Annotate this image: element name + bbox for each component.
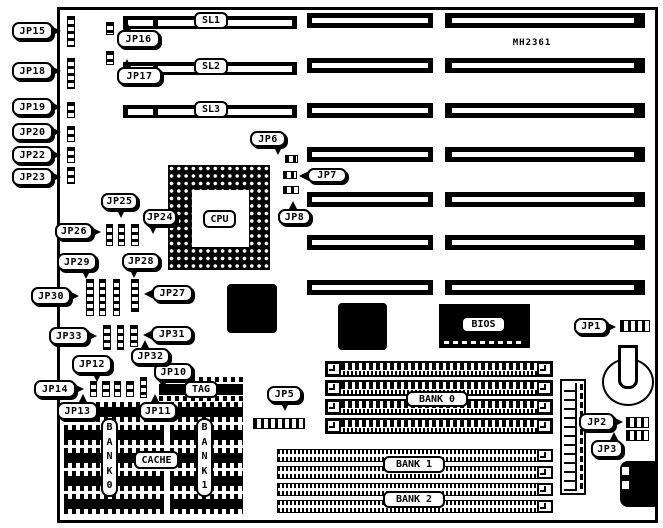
vertical-label-char: A xyxy=(106,436,112,451)
simm-latch-right xyxy=(537,483,553,496)
callout-jp7: JP7 xyxy=(307,168,347,183)
callout-jp12: JP12 xyxy=(72,355,112,374)
callout-jp32: JP32 xyxy=(131,348,170,365)
callout-jp10-text: JP10 xyxy=(160,367,186,378)
callout-jp19-text: JP19 xyxy=(19,102,45,113)
tag-label-text: TAG xyxy=(192,384,210,395)
callout-jp16-text: JP16 xyxy=(125,34,151,45)
callout-jp5-text: JP5 xyxy=(275,389,295,400)
slot-sl1-label: SL1 xyxy=(194,12,228,29)
callout-jp14-text: JP14 xyxy=(42,384,68,395)
callout-jp33-pointer xyxy=(87,331,97,341)
callout-jp11-text: JP11 xyxy=(145,406,171,417)
callout-jp15: JP15 xyxy=(12,22,53,40)
callout-jp11: JP11 xyxy=(139,402,177,420)
callout-jp26-pointer xyxy=(91,227,101,237)
callout-jp15-text: JP15 xyxy=(19,26,45,37)
callout-jp13-pointer xyxy=(78,394,88,404)
simm-latch-right xyxy=(537,362,552,376)
callout-jp20-pointer xyxy=(51,127,61,137)
bank2-label-text: BANK 2 xyxy=(396,494,432,505)
jp5-jumper xyxy=(253,418,305,429)
simm-latch-right xyxy=(537,419,552,433)
callout-jp17-text: JP17 xyxy=(126,71,152,82)
isa-slot-right-2 xyxy=(445,58,645,73)
jp33-jumper xyxy=(103,325,111,350)
cache-label: CACHE xyxy=(134,451,179,469)
callout-jp29-pointer xyxy=(81,269,91,279)
callout-jp27-pointer xyxy=(144,289,154,299)
jp16-jumper xyxy=(106,22,114,35)
callout-jp33: JP33 xyxy=(49,327,89,345)
bank1-label: BANK 1 xyxy=(383,456,445,473)
jp25-jumper xyxy=(118,224,125,246)
bank1-label-text: BANK 1 xyxy=(396,459,432,470)
callout-jp13: JP13 xyxy=(57,402,98,420)
jp15-jumper xyxy=(67,16,75,47)
callout-jp20-text: JP20 xyxy=(19,127,45,138)
callout-jp25-pointer xyxy=(116,208,126,218)
jp18-jumper xyxy=(67,58,75,89)
jp1-jumper xyxy=(620,320,650,332)
jp29-jumper-b xyxy=(113,279,120,316)
callout-jp8: JP8 xyxy=(278,209,311,225)
callout-jp29: JP29 xyxy=(57,253,97,271)
cpu-label-text: CPU xyxy=(210,214,228,225)
callout-jp26-text: JP26 xyxy=(61,226,87,237)
callout-jp28-pointer xyxy=(129,268,139,278)
tag-label: TAG xyxy=(184,381,218,398)
callout-jp24-text: JP24 xyxy=(147,212,173,223)
isa-slot-mid-1 xyxy=(307,13,433,28)
callout-jp28: JP28 xyxy=(122,253,160,270)
callout-jp22: JP22 xyxy=(12,146,53,164)
slot-sl2-label: SL2 xyxy=(194,58,228,75)
callout-jp18-text: JP18 xyxy=(19,66,45,77)
bios-label: BIOS xyxy=(461,316,506,333)
power-connector-pins xyxy=(564,383,577,491)
callout-jp11-pointer xyxy=(150,394,160,404)
callout-jp22-pointer xyxy=(51,150,61,160)
callout-jp25: JP25 xyxy=(101,193,138,210)
motherboard-diagram: MH2361 CPU BIOS TAG CACHE BANK0 BANK1 BA… xyxy=(0,0,663,528)
callout-jp16: JP16 xyxy=(117,30,160,48)
isa-slot-mid-6 xyxy=(307,235,433,250)
jp20-jumper xyxy=(67,126,75,142)
keyboard-connector-notch-1 xyxy=(622,467,629,475)
callout-jp30-pointer xyxy=(69,291,79,301)
isa-slot-mid-4 xyxy=(307,147,433,162)
bank0-simm-socket-1 xyxy=(325,361,553,377)
callout-jp18-pointer xyxy=(51,66,61,76)
jp27-jumper xyxy=(131,279,139,312)
jp7-jumper xyxy=(283,171,297,179)
callout-jp32-pointer xyxy=(140,340,150,350)
callout-jp30: JP30 xyxy=(31,287,71,305)
isa-slot-mid-2 xyxy=(307,58,433,73)
bios-label-text: BIOS xyxy=(471,319,495,330)
callout-jp8-text: JP8 xyxy=(285,212,305,223)
vertical-label-char: A xyxy=(201,436,207,451)
vertical-label-char: K xyxy=(106,465,112,480)
callout-jp28-text: JP28 xyxy=(128,256,154,267)
callout-jp19: JP19 xyxy=(12,98,53,116)
callout-jp22-text: JP22 xyxy=(19,150,45,161)
callout-jp29-text: JP29 xyxy=(64,257,90,268)
bank0-simm-socket-4 xyxy=(325,418,553,434)
isa-slot-right-4 xyxy=(445,147,645,162)
jp2-jumper xyxy=(626,417,649,428)
jp26-jumper xyxy=(106,224,113,246)
callout-jp10-pointer xyxy=(158,379,168,389)
callout-jp25-text: JP25 xyxy=(106,196,132,207)
callout-jp17: JP17 xyxy=(117,67,162,85)
callout-jp7-pointer xyxy=(299,171,309,181)
isa-slot-right-3 xyxy=(445,103,645,118)
bank0-label: BANK 0 xyxy=(406,391,468,407)
callout-jp14-pointer xyxy=(74,384,84,394)
callout-jp12-pointer xyxy=(92,372,102,382)
vertical-label-char: 1 xyxy=(201,479,207,494)
battery-clip xyxy=(618,345,638,389)
callout-jp23-pointer xyxy=(51,172,61,182)
power-connector xyxy=(560,379,586,495)
callout-jp26: JP26 xyxy=(55,223,93,240)
sl1-text: SL1 xyxy=(202,15,220,26)
jp24-jumper xyxy=(131,224,139,246)
callout-jp19-pointer xyxy=(51,102,61,112)
callout-jp2-text: JP2 xyxy=(587,417,607,428)
cache-bank0-vertical-label: BANK0 xyxy=(101,418,118,497)
callout-jp33-text: JP33 xyxy=(56,331,82,342)
callout-jp32-text: JP32 xyxy=(137,351,163,362)
callout-jp6-text: JP6 xyxy=(258,134,278,145)
bank2-label: BANK 2 xyxy=(383,491,445,508)
jp29-jumper-a xyxy=(99,279,106,316)
callout-jp6: JP6 xyxy=(250,131,286,147)
callout-jp3-pointer xyxy=(609,432,619,442)
callout-jp1: JP1 xyxy=(574,318,608,335)
vertical-label-char: B xyxy=(106,421,112,436)
sl3-text: SL3 xyxy=(202,104,220,115)
keyboard-connector-notch-2 xyxy=(622,481,629,489)
simm-latch-left xyxy=(326,381,341,395)
cache-chip-right-5 xyxy=(170,494,243,514)
callout-jp20: JP20 xyxy=(12,123,53,141)
vertical-label-char: 0 xyxy=(106,479,112,494)
jp12-jumper xyxy=(102,381,110,397)
jp19-jumper xyxy=(67,102,75,118)
isa-slot-mid-7 xyxy=(307,280,433,295)
simm-latch-left xyxy=(326,400,341,414)
qfp-chip-1 xyxy=(227,284,277,333)
callout-jp8-pointer xyxy=(288,201,298,211)
cache-label-text: CACHE xyxy=(141,455,171,466)
callout-jp3-text: JP3 xyxy=(597,444,617,455)
isa-slot-right-6 xyxy=(445,235,645,250)
simm-latch-right xyxy=(537,466,553,479)
cpu-label: CPU xyxy=(203,210,236,228)
jp14-jumper xyxy=(90,381,97,397)
jp6-jumper xyxy=(285,155,298,163)
jp8-jumper xyxy=(283,186,299,194)
callout-jp31-pointer xyxy=(143,330,153,340)
simm-latch-left xyxy=(326,419,341,433)
callout-jp27-text: JP27 xyxy=(159,288,185,299)
callout-jp5-pointer xyxy=(280,401,290,411)
simm-latch-right xyxy=(537,449,553,462)
power-connector-contacts xyxy=(580,384,583,490)
cache-bank1-vertical-label: BANK1 xyxy=(196,418,213,497)
isa-slot-right-1 xyxy=(445,13,645,28)
callout-jp1-text: JP1 xyxy=(581,321,601,332)
callout-jp1-pointer xyxy=(606,322,616,332)
callout-jp2: JP2 xyxy=(579,413,615,431)
jp31-jumper xyxy=(130,325,138,347)
jp32-jumper xyxy=(117,325,124,350)
vertical-label-char: N xyxy=(106,450,112,465)
board-model-text: MH2361 xyxy=(506,38,558,50)
callout-jp30-text: JP30 xyxy=(38,291,64,302)
callout-jp31: JP31 xyxy=(151,326,193,343)
callout-jp15-pointer xyxy=(51,26,61,36)
simm-latch-right xyxy=(537,400,552,414)
callout-jp12-text: JP12 xyxy=(79,359,105,370)
callout-jp7-text: JP7 xyxy=(317,170,337,181)
jp3-jumper xyxy=(626,430,649,441)
qfp-chip-2 xyxy=(338,303,387,350)
callout-jp5: JP5 xyxy=(267,386,302,403)
callout-jp17-pointer xyxy=(122,59,132,69)
callout-jp3: JP3 xyxy=(591,440,623,458)
callout-jp2-pointer xyxy=(613,417,623,427)
jp23-jumper xyxy=(67,167,75,184)
callout-jp31-text: JP31 xyxy=(159,329,185,340)
vertical-label-char: N xyxy=(201,450,207,465)
jp30-jumper xyxy=(86,279,94,316)
callout-jp10: JP10 xyxy=(154,363,193,381)
jp11-jumper xyxy=(126,381,134,397)
callout-jp13-text: JP13 xyxy=(64,406,90,417)
sl2-text: SL2 xyxy=(202,61,220,72)
callout-jp18: JP18 xyxy=(12,62,53,80)
callout-jp24: JP24 xyxy=(143,209,177,226)
simm-latch-left xyxy=(326,362,341,376)
isa-slot-mid-3 xyxy=(307,103,433,118)
isa-slot-right-7 xyxy=(445,280,645,295)
callout-jp23: JP23 xyxy=(12,168,53,186)
callout-jp24-pointer xyxy=(148,224,158,234)
callout-jp16-pointer xyxy=(122,22,132,32)
simm-latch-right xyxy=(537,381,552,395)
slot-sl3-label: SL3 xyxy=(194,101,228,118)
vertical-label-char: K xyxy=(201,465,207,480)
callout-jp14: JP14 xyxy=(34,380,76,398)
jp17-jumper xyxy=(106,51,114,65)
bios-socket-dashes xyxy=(444,341,525,344)
callout-jp23-text: JP23 xyxy=(19,172,45,183)
isa-slot-right-5 xyxy=(445,192,645,207)
jp13-jumper xyxy=(114,381,121,397)
callout-jp27: JP27 xyxy=(152,285,193,302)
bank0-label-text: BANK 0 xyxy=(419,394,455,405)
jp10-jumper xyxy=(140,377,147,398)
simm-latch-right xyxy=(537,500,553,513)
jp22-jumper xyxy=(67,147,75,163)
isa-slot-mid-5 xyxy=(307,192,433,207)
cache-chip-left-5 xyxy=(64,494,164,514)
vertical-label-char: B xyxy=(201,421,207,436)
callout-jp6-pointer xyxy=(273,145,283,155)
